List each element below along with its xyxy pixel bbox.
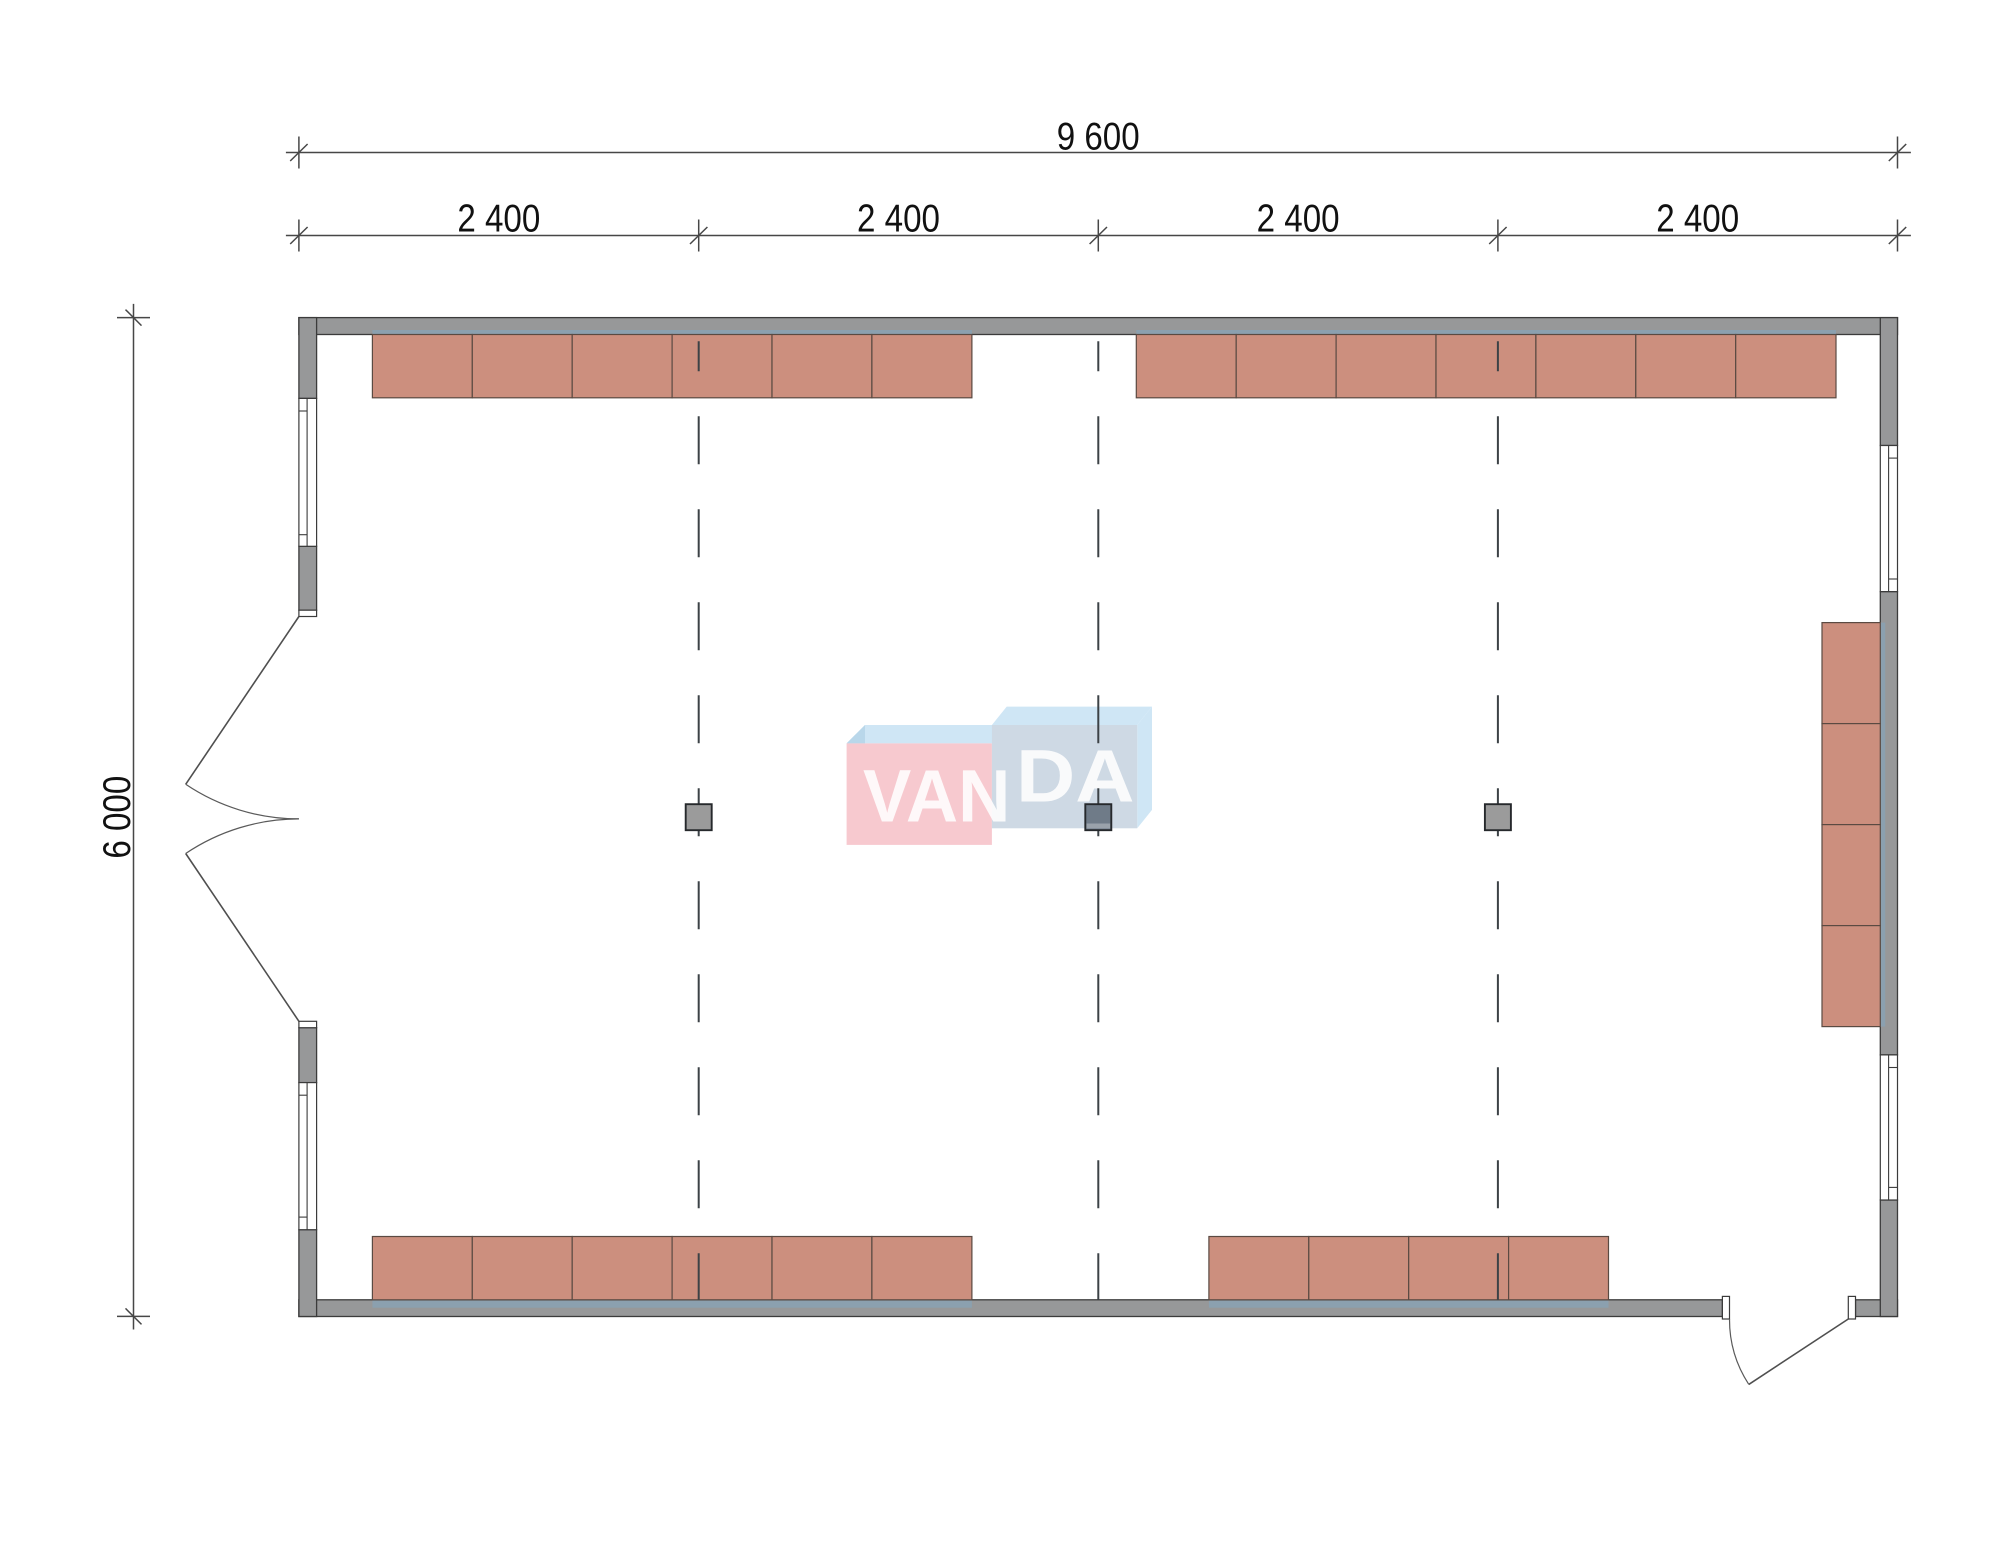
svg-text:2 400: 2 400 [857, 196, 940, 240]
svg-text:9 600: 9 600 [1057, 114, 1140, 158]
svg-text:6 000: 6 000 [94, 776, 138, 859]
svg-text:DA: DA [1016, 734, 1135, 818]
svg-text:2 400: 2 400 [457, 196, 540, 240]
svg-text:2 400: 2 400 [1656, 196, 1739, 240]
svg-text:VAN: VAN [863, 753, 1010, 837]
svg-text:2 400: 2 400 [1257, 196, 1340, 240]
